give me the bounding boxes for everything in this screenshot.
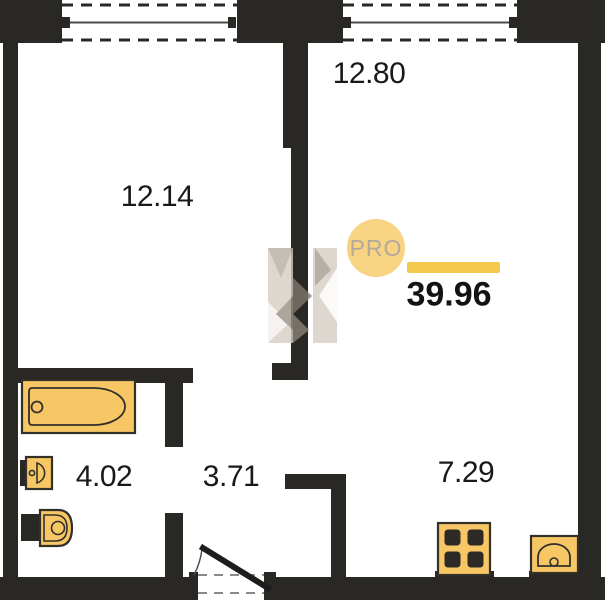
entrance-door-icon [194,548,268,593]
window-icon [343,5,517,40]
room-area-label-kitchen: 7.29 [438,456,494,490]
bathtub-icon [22,380,135,433]
window-icon [62,5,237,40]
total-area-label: 39.96 [406,276,491,315]
kitchen-sink-icon [529,536,582,579]
room-area-label-bathroom: 4.02 [76,460,132,494]
washbasin-icon [20,457,52,489]
floor-plan: 12.14 12.80 4.02 3.71 7.29 PRO 39.96 [0,0,605,600]
floor-plan-drawing [0,0,605,600]
accent-underline [407,262,500,273]
pro-badge: PRO [347,219,405,277]
room-area-label-hallway: 3.71 [203,460,259,494]
stove-icon [435,523,494,580]
room-area-label-bedroom: 12.80 [333,57,406,91]
toilet-icon [21,510,72,546]
pro-badge-label: PRO [350,235,403,262]
room-area-label-living: 12.14 [121,180,194,214]
